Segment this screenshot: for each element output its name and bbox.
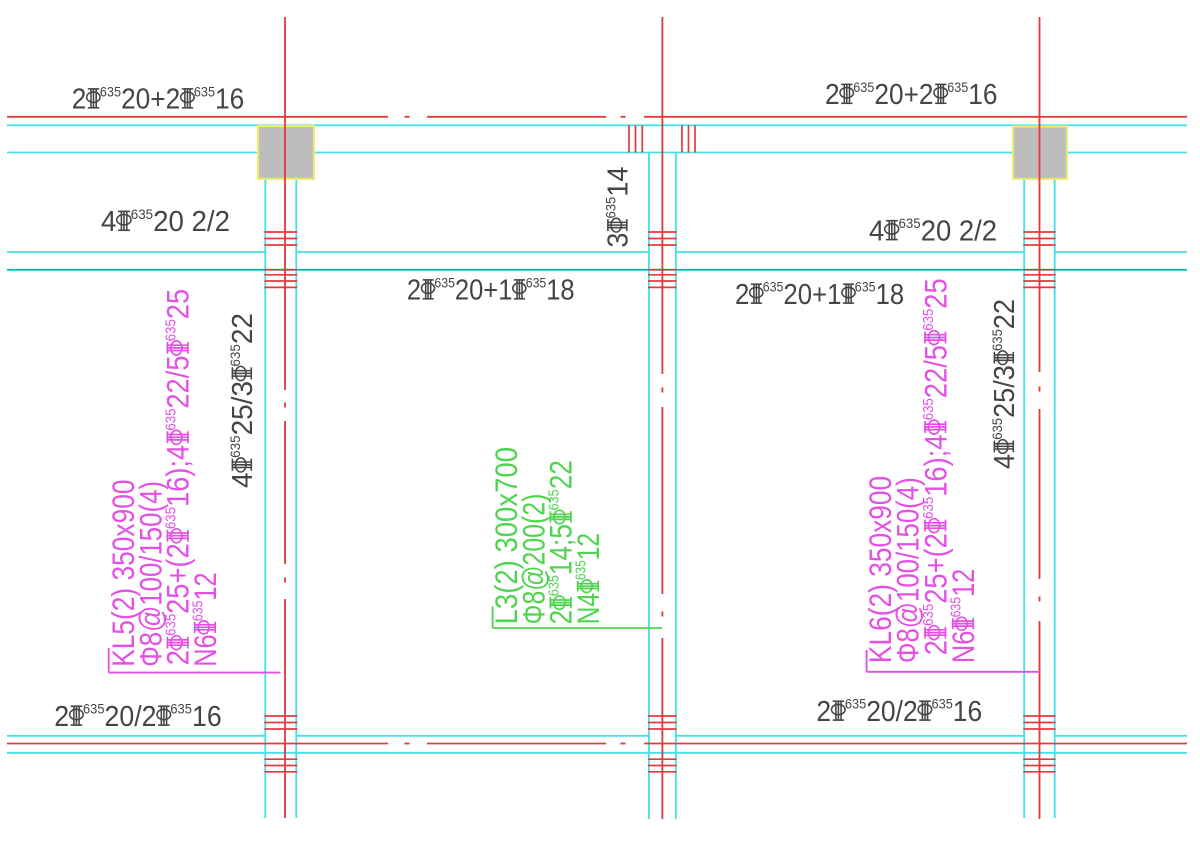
svg-text:635: 635	[920, 604, 937, 626]
svg-text:25: 25	[917, 278, 953, 308]
svg-text:2: 2	[407, 275, 421, 307]
svg-text:2: 2	[72, 84, 87, 116]
svg-text:20+1: 20+1	[783, 279, 841, 311]
svg-text:12: 12	[187, 572, 223, 600]
svg-text:16);4: 16);4	[160, 445, 196, 507]
svg-text:22/5: 22/5	[917, 345, 953, 398]
svg-text:635: 635	[855, 279, 876, 295]
svg-text:635: 635	[194, 83, 215, 99]
svg-text:635: 635	[899, 215, 921, 231]
svg-text:20 2/2: 20 2/2	[153, 206, 230, 238]
svg-text:25/3: 25/3	[989, 365, 1021, 418]
svg-text:20/2: 20/2	[105, 701, 157, 733]
svg-text:12: 12	[570, 533, 606, 560]
svg-text:20+1: 20+1	[455, 275, 513, 307]
svg-text:635: 635	[573, 560, 590, 580]
svg-text:635: 635	[989, 329, 1005, 351]
svg-text:16: 16	[953, 696, 982, 728]
svg-text:635: 635	[83, 701, 105, 717]
svg-text:635: 635	[526, 274, 547, 290]
svg-text:635: 635	[932, 696, 953, 712]
svg-text:N6: N6	[945, 631, 981, 664]
svg-text:22: 22	[989, 299, 1021, 329]
svg-text:20+2: 20+2	[874, 79, 933, 111]
svg-text:635: 635	[190, 601, 207, 622]
svg-text:16: 16	[192, 701, 222, 733]
svg-text:635: 635	[131, 206, 154, 222]
svg-text:635: 635	[545, 489, 562, 510]
svg-text:635: 635	[947, 79, 968, 95]
svg-text:4: 4	[227, 473, 259, 489]
svg-text:20/2: 20/2	[866, 696, 918, 728]
svg-text:12: 12	[945, 569, 981, 597]
svg-text:22/5: 22/5	[160, 355, 196, 408]
svg-text:635: 635	[989, 418, 1005, 440]
svg-text:16);4: 16);4	[917, 435, 953, 497]
svg-text:635: 635	[162, 319, 179, 341]
svg-text:20+2: 20+2	[121, 84, 180, 116]
svg-text:635: 635	[853, 79, 874, 95]
svg-text:635: 635	[162, 409, 179, 431]
svg-text:635: 635	[162, 507, 179, 529]
svg-text:635: 635	[920, 497, 937, 519]
svg-text:635: 635	[170, 701, 192, 717]
svg-text:2: 2	[816, 696, 831, 728]
svg-text:635: 635	[948, 597, 965, 618]
svg-text:635: 635	[100, 83, 121, 99]
svg-text:635: 635	[545, 575, 562, 596]
svg-text:635: 635	[162, 614, 179, 636]
svg-text:18: 18	[546, 275, 574, 307]
svg-text:20 2/2: 20 2/2	[921, 215, 997, 247]
svg-text:2: 2	[735, 279, 749, 311]
svg-text:635: 635	[434, 274, 455, 290]
svg-text:635: 635	[602, 197, 618, 219]
svg-text:635: 635	[227, 344, 243, 367]
svg-text:4: 4	[869, 215, 884, 247]
svg-text:4: 4	[989, 454, 1021, 469]
svg-text:22: 22	[543, 460, 579, 489]
svg-text:N6: N6	[187, 634, 223, 667]
svg-text:3: 3	[603, 233, 635, 248]
svg-text:14: 14	[603, 167, 635, 197]
svg-text:635: 635	[920, 309, 937, 331]
svg-text:635: 635	[763, 279, 784, 295]
svg-text:2: 2	[825, 79, 840, 111]
svg-text:25: 25	[160, 289, 196, 319]
svg-text:22: 22	[227, 313, 259, 344]
svg-text:635: 635	[920, 398, 937, 420]
svg-text:25/3: 25/3	[227, 381, 259, 435]
svg-text:2: 2	[54, 701, 69, 733]
svg-text:635: 635	[227, 435, 243, 458]
svg-text:N4: N4	[570, 593, 606, 625]
svg-text:16: 16	[968, 79, 997, 111]
svg-text:16: 16	[215, 84, 244, 116]
svg-text:635: 635	[845, 696, 866, 712]
svg-text:4: 4	[101, 206, 116, 238]
svg-text:18: 18	[876, 279, 905, 311]
